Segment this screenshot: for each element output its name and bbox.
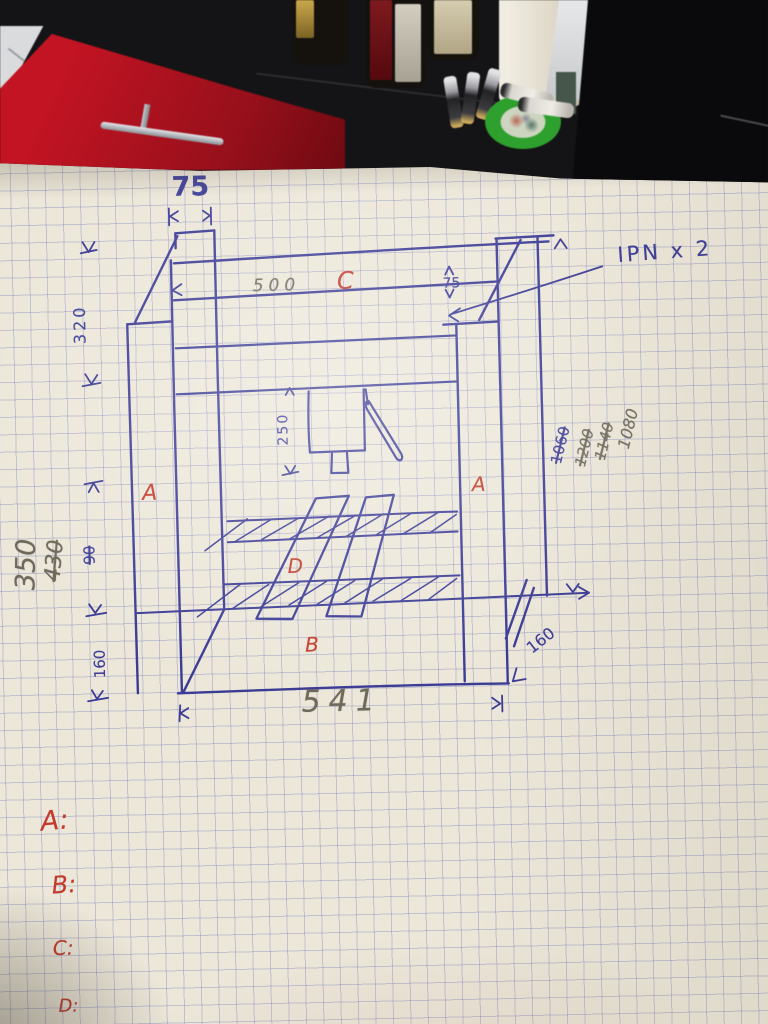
annotation-ipn: IPN x 2	[617, 238, 713, 266]
bottle-2-label-white	[395, 4, 421, 82]
dim-height-1080: 1080	[616, 407, 641, 450]
dim-height-1140-struck: 1140	[593, 421, 617, 462]
bottle-1	[293, 0, 348, 65]
bottle-2	[366, 0, 425, 88]
bottle-3	[428, 0, 478, 60]
dim-left-bottom-height: 160	[93, 649, 109, 678]
dim-left-mid-height-struck: 430	[42, 539, 67, 583]
bottle-1-label	[296, 0, 314, 38]
legend-item-a: A:	[39, 806, 69, 835]
lid-contents	[505, 112, 543, 134]
dim-left-top-height: 320	[72, 304, 89, 344]
label-part-b: B	[305, 634, 319, 654]
label-part-c: C	[337, 269, 354, 293]
label-part-d: D	[287, 556, 303, 576]
dim-press-stroke: 250	[276, 413, 291, 446]
bottle-3-label	[434, 0, 472, 54]
dim-beam-span: 500	[253, 277, 301, 295]
label-part-a-right: A	[472, 474, 486, 494]
legend-item-d: D:	[58, 997, 78, 1015]
dim-height-1060-struck: 1060	[549, 425, 573, 466]
countertop-scene	[0, 0, 768, 192]
dim-top-column-width: 75	[171, 173, 209, 201]
bottle-2-label-red	[370, 0, 392, 80]
legend-item-b: B:	[51, 872, 77, 898]
dim-left-mid-height: 350	[12, 539, 40, 591]
dim-beam-height: 75	[442, 276, 460, 290]
dim-bottom-right-offset: 160	[524, 625, 558, 656]
dim-left-small-struck: 90	[82, 545, 97, 564]
legend-item-c: C:	[53, 938, 74, 958]
handwritten-annotations: 75 500 75 IPN x 2 320 350 430 90 160 250…	[0, 142, 768, 1024]
label-part-a-left: A	[142, 483, 158, 505]
countertop-objects	[0, 0, 768, 192]
photo-of-hand-drawn-plan: 75 500 75 IPN x 2 320 350 430 90 160 250…	[0, 0, 768, 1024]
dim-base-width: 541	[301, 686, 383, 718]
black-panel	[568, 0, 768, 192]
graph-paper: 75 500 75 IPN x 2 320 350 430 90 160 250…	[0, 140, 768, 1024]
